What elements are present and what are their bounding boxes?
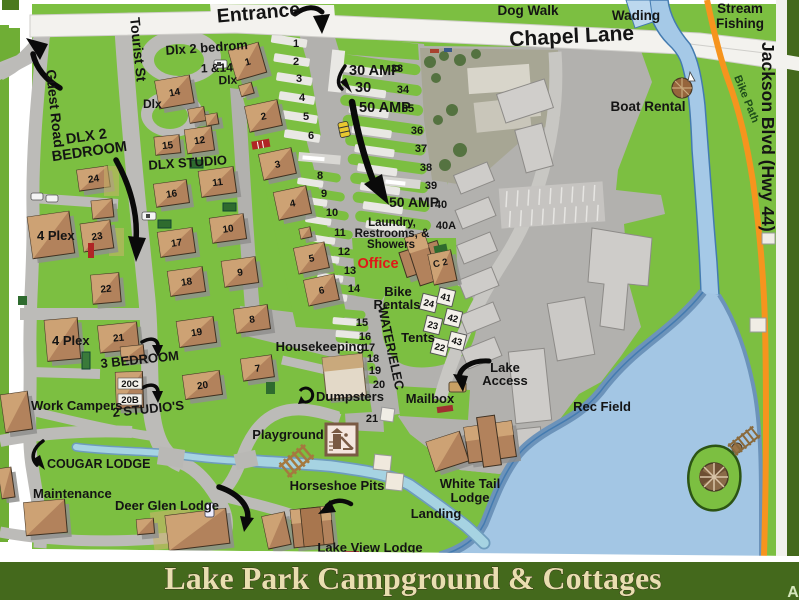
svg-text:A: A [787,584,799,600]
svg-text:Jackson Blvd (Hwy 44): Jackson Blvd (Hwy 44) [758,42,778,232]
svg-text:20: 20 [373,379,385,391]
svg-text:13: 13 [344,265,356,277]
svg-text:14: 14 [348,283,361,295]
svg-text:35: 35 [402,103,414,115]
svg-text:10: 10 [222,223,235,236]
svg-text:33: 33 [391,63,403,75]
svg-text:Dumpsters: Dumpsters [316,389,384,404]
svg-text:3: 3 [296,73,302,85]
svg-text:Playground: Playground [252,427,324,442]
svg-text:Lake Park Campground & Cottage: Lake Park Campground & Cottages [164,560,661,596]
svg-text:24: 24 [87,173,100,186]
svg-text:15: 15 [162,140,175,152]
svg-text:19: 19 [369,365,381,377]
svg-text:18: 18 [367,353,379,365]
svg-text:COUGAR LODGE: COUGAR LODGE [47,457,150,471]
svg-text:5: 5 [303,111,309,123]
svg-text:Rec Field: Rec Field [573,399,631,414]
svg-text:Stream: Stream [717,1,763,16]
svg-text:19: 19 [190,327,203,340]
svg-text:39: 39 [425,180,437,192]
svg-text:30: 30 [355,80,371,96]
svg-text:Showers: Showers [367,239,415,251]
svg-text:4 Plex: 4 Plex [52,333,90,348]
svg-text:Maintenance: Maintenance [33,486,112,501]
svg-text:Housekeeping: Housekeeping [276,339,365,354]
svg-text:Tents: Tents [401,330,435,345]
svg-text:15: 15 [356,317,368,329]
svg-text:Fishing: Fishing [716,16,764,31]
svg-text:17: 17 [170,237,183,250]
svg-text:Office: Office [357,256,398,272]
svg-text:21: 21 [366,413,378,425]
svg-text:23: 23 [91,231,104,244]
svg-text:6: 6 [308,130,314,142]
svg-text:38: 38 [420,162,432,174]
svg-text:20C: 20C [121,379,139,390]
svg-text:9: 9 [321,188,327,200]
svg-text:Dog Walk: Dog Walk [497,3,558,18]
svg-text:Boat Rental: Boat Rental [610,99,685,114]
svg-text:Dlx: Dlx [218,73,237,88]
svg-text:2: 2 [293,56,299,68]
svg-text:36: 36 [411,125,423,137]
svg-text:4 Plex: 4 Plex [37,228,75,243]
svg-text:Deer Glen Lodge: Deer Glen Lodge [115,498,219,513]
svg-text:Access: Access [482,373,528,388]
svg-text:22: 22 [100,284,112,296]
svg-text:Wading: Wading [612,8,660,23]
svg-text:21: 21 [113,332,126,344]
svg-text:White Tail: White Tail [440,476,500,491]
svg-text:1: 1 [293,38,299,50]
svg-text:10: 10 [326,207,338,219]
svg-text:Landing: Landing [411,506,462,521]
svg-text:12: 12 [338,246,350,258]
svg-text:37: 37 [415,143,427,155]
svg-text:4: 4 [299,92,306,104]
svg-text:11: 11 [212,177,224,189]
svg-text:34: 34 [397,84,410,96]
svg-text:20: 20 [196,380,209,393]
svg-text:Horseshoe Pits: Horseshoe Pits [290,478,385,493]
svg-text:8: 8 [317,170,323,182]
svg-text:40: 40 [435,199,447,211]
svg-text:11: 11 [334,227,346,239]
svg-text:12: 12 [193,135,206,148]
svg-text:Lodge: Lodge [451,490,490,505]
svg-text:40A: 40A [436,220,456,232]
svg-text:18: 18 [180,276,193,289]
svg-text:Work Campers: Work Campers [31,398,123,413]
svg-text:Dlx: Dlx [143,97,162,111]
svg-text:20B: 20B [121,395,139,406]
svg-text:Mailbox: Mailbox [406,391,455,406]
svg-text:16: 16 [165,188,178,201]
svg-text:50 AMP: 50 AMP [389,194,439,210]
